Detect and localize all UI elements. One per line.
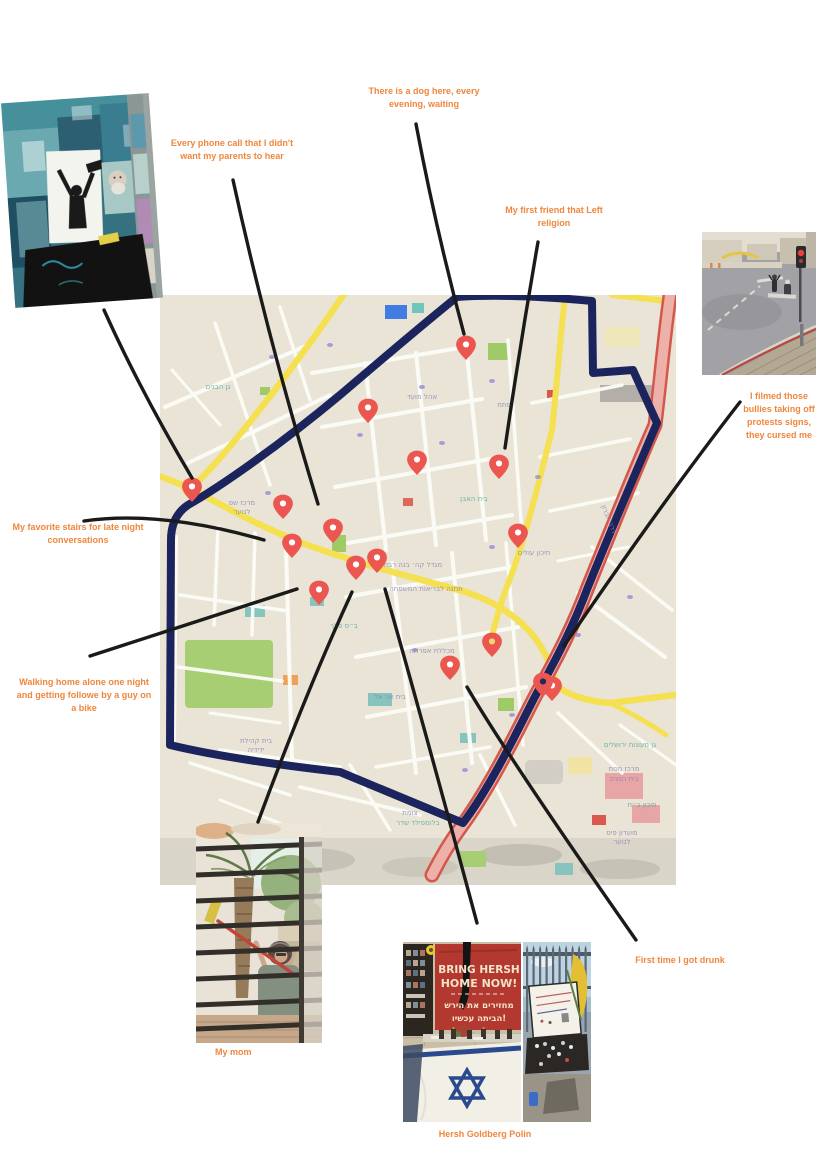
- street-label: גן הבנים: [206, 383, 231, 391]
- caption-hersh: Hersh Goldberg Polin: [431, 1128, 539, 1141]
- note-phone: Every phone call that I didn't want my p…: [165, 137, 299, 163]
- street-label: ידידיה: [248, 746, 265, 754]
- banner-hebrew2: הביתה עכשיו!: [452, 1014, 506, 1024]
- street-label: תחנה לבריאות המשפחה: [389, 585, 463, 593]
- caption-mom: My mom: [215, 1046, 285, 1059]
- protest-poster: [46, 149, 106, 243]
- street-label: מרכז שפ: [229, 499, 256, 507]
- street-label: מרכז מסח: [609, 765, 640, 773]
- banner-hebrew1: מחזירים את הירש: [444, 1001, 513, 1011]
- street-label: פתח: [497, 401, 511, 409]
- photo-poster-wall: [1, 93, 163, 308]
- candles-table: [525, 1034, 589, 1074]
- street-label: בית האבן: [460, 495, 488, 503]
- banner-line1: BRING HERSH: [438, 964, 519, 976]
- banner-line2: HOME NOW!: [441, 977, 518, 990]
- hostage-photo-wall: [403, 944, 433, 1036]
- note-walking: Walking home alone one night and getting…: [15, 676, 153, 715]
- street-label: בית קהילת: [240, 737, 272, 745]
- collage-canvas: גן הבניםאהל מועדפתחמרכז שפלנוערבית האבןת…: [0, 0, 824, 1165]
- photo-street: [702, 232, 816, 375]
- street-label: לנוער: [233, 508, 250, 516]
- street-label: תיכון עולים: [518, 549, 550, 557]
- note-bullies: I filmed those bullies taking off protes…: [742, 390, 816, 442]
- street-label: מועדון פיס: [606, 829, 638, 837]
- street-label: מכללת אפרתה: [409, 647, 455, 655]
- map: גן הבניםאהל מועדפתחמרכז שפלנוערבית האבןת…: [160, 295, 676, 885]
- blue-bottle: [529, 1092, 538, 1106]
- street-label: בית הנציב: [609, 775, 639, 783]
- stone: [543, 1078, 579, 1114]
- street-label: מגדל קה׳ בנה רבתי: [382, 561, 442, 569]
- street-label: תיכון ב״ח: [627, 801, 656, 809]
- note-dog: There is a dog here, every evening, wait…: [361, 85, 487, 111]
- note-friend: My first friend that Left religion: [495, 204, 613, 230]
- street-label: לנוער: [613, 838, 630, 846]
- street-label: גן מעונות ירושלים: [604, 741, 656, 749]
- photo-hersh-banner: BRING HERSH HOME NOW! מחזירים את הירש הב…: [403, 942, 521, 1122]
- note-stairs: My favorite stairs for late night conver…: [7, 521, 149, 547]
- street-label: ב״ס פלך: [330, 622, 357, 630]
- street-label: בית אר אל: [374, 693, 406, 701]
- photo-hersh-memorial: [523, 942, 591, 1122]
- portrait-poster: [101, 160, 135, 214]
- street-label: צומת: [402, 809, 417, 817]
- street-label: בלומפילד שדר: [396, 819, 439, 827]
- bring-hersh-banner: BRING HERSH HOME NOW! מחזירים את הירש הב…: [435, 942, 521, 1030]
- map-svg: גן הבניםאהל מועדפתחמרכז שפלנוערבית האבןת…: [160, 295, 676, 885]
- israeli-flag: [403, 1042, 521, 1122]
- photo-mom: [196, 823, 322, 1043]
- street-label: אהל מועד: [407, 393, 438, 401]
- note-drunk: First time I got drunk: [630, 954, 730, 967]
